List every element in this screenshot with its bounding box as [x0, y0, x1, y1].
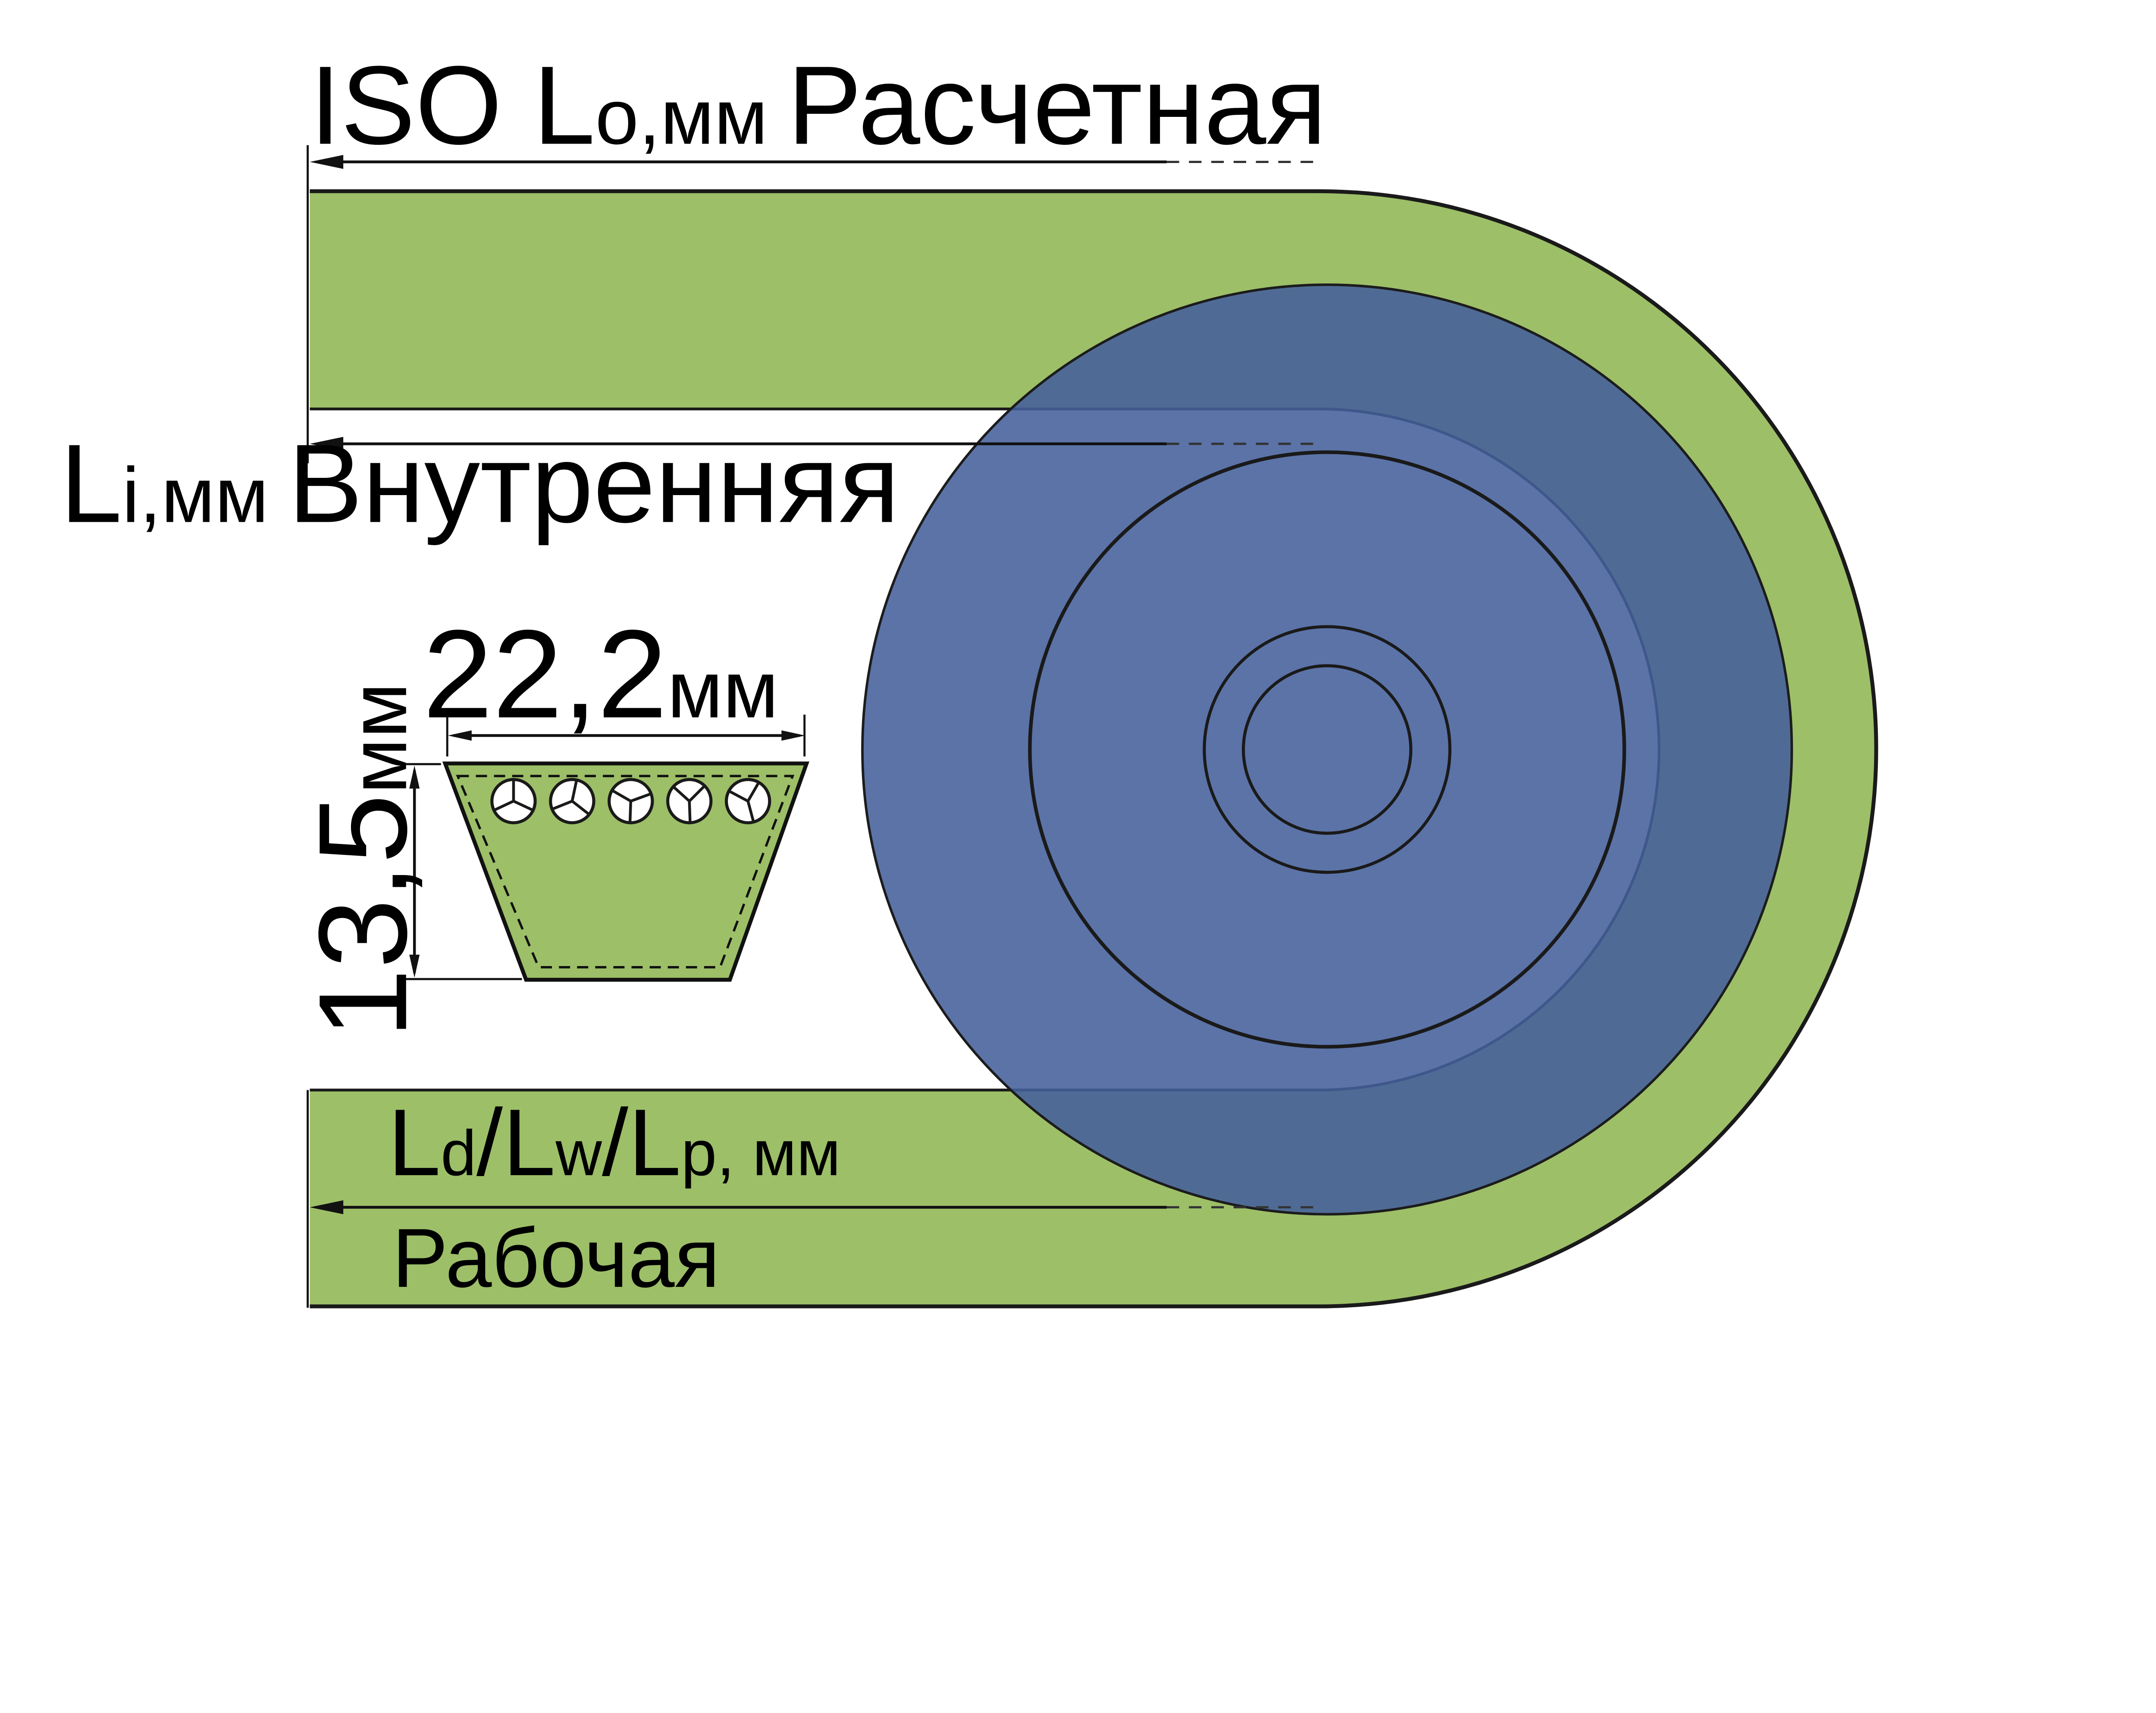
section-width-value: 22,2 — [423, 603, 667, 744]
section-width-unit: мм — [667, 644, 778, 734]
datum-l2: L — [503, 1089, 555, 1195]
outer-length-subscript: o — [595, 73, 639, 160]
outer-length-label: ISO Lo,ммРасчетная — [310, 43, 1326, 167]
datum-sub2: w — [555, 1117, 602, 1189]
datum-l1: L — [388, 1089, 441, 1195]
cord-spoke — [630, 801, 631, 822]
inner-length-unit: ,мм — [139, 452, 269, 539]
datum-sub1: d — [441, 1117, 476, 1189]
inner-length-subscript: i — [122, 452, 139, 539]
section-height-unit: мм — [333, 683, 423, 794]
outer-length-name: Расчетная — [787, 43, 1327, 167]
inner-length-prefix: L — [60, 421, 122, 546]
working-length-label: Рабочая — [392, 1211, 720, 1305]
datum-l3: L — [628, 1089, 681, 1195]
cord — [609, 779, 652, 822]
working-length-name: Рабочая — [392, 1211, 720, 1305]
diagram-stage: ISO Lo,ммРасчетная Li,ммВнутренняя 22,2м… — [0, 0, 2156, 1713]
datum-slash1: / — [476, 1089, 503, 1195]
cord — [492, 779, 535, 822]
cord — [726, 779, 769, 822]
outer-length-unit: ,мм — [639, 73, 768, 160]
cord — [668, 779, 711, 822]
cord-spoke — [689, 801, 690, 822]
inner-length-name: Внутренняя — [288, 421, 899, 546]
cord — [551, 779, 594, 822]
section-height-value: 13,5 — [292, 794, 433, 1038]
datum-sub3: p — [681, 1117, 717, 1189]
v-belt-length-diagram: ISO Lo,ммРасчетная Li,ммВнутренняя 22,2м… — [0, 0, 2156, 1437]
datum-slash2: / — [602, 1089, 629, 1195]
pulley — [862, 285, 1792, 1214]
datum-unit: , мм — [717, 1117, 840, 1189]
pulley-disc — [862, 285, 1792, 1214]
outer-length-prefix: ISO L — [310, 43, 595, 167]
